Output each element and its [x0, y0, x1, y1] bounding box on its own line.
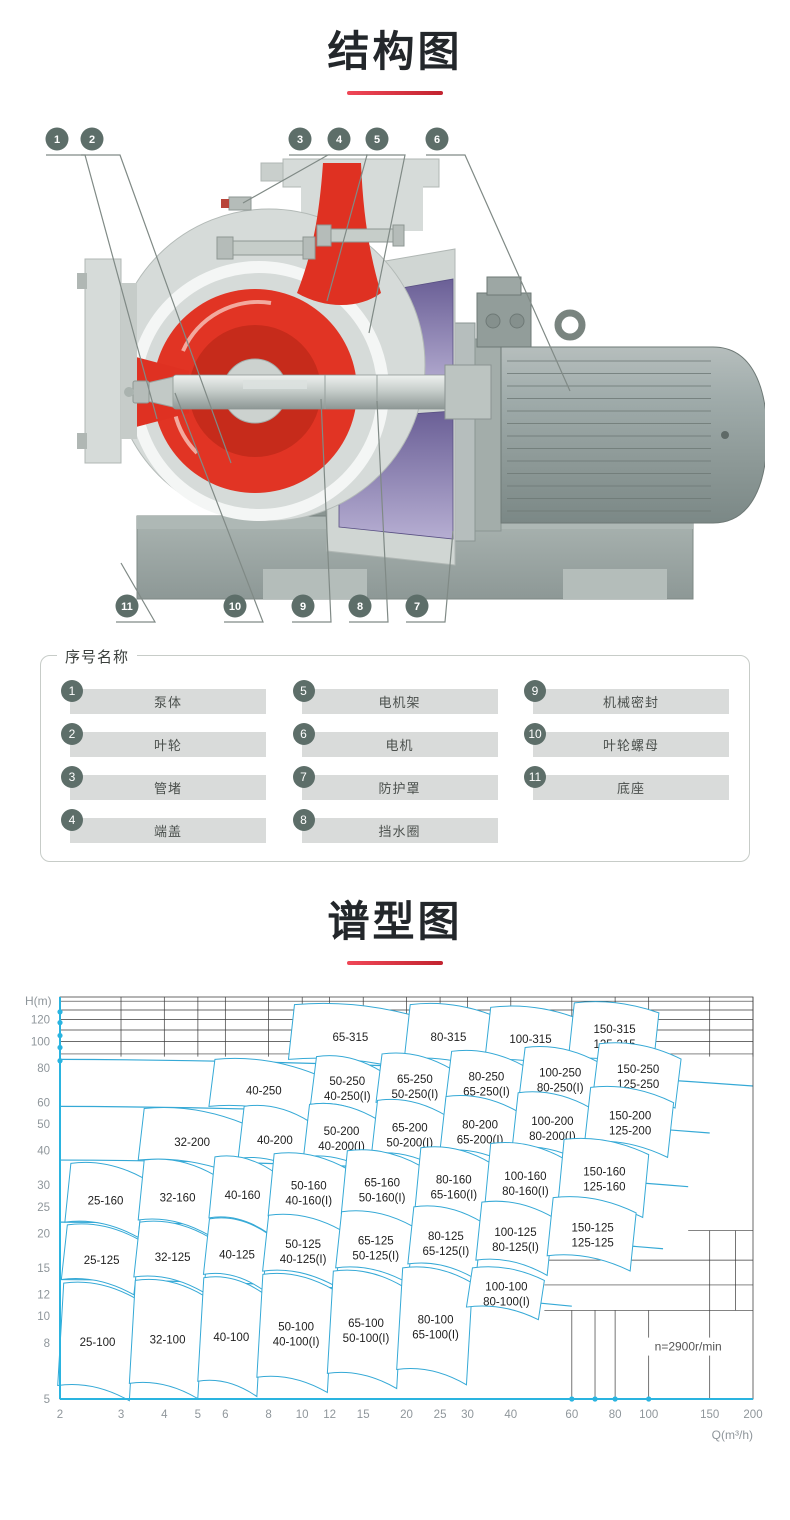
part-name: 端盖: [70, 818, 266, 843]
part-item: 2叶轮: [61, 723, 266, 759]
pump-selection-chart: 65-31580-315100-315150-315125-31540-2505…: [5, 981, 785, 1447]
part-name: 泵体: [70, 689, 266, 714]
region-label: 40-160(I): [285, 1195, 332, 1207]
region-label: 65-200: [392, 1123, 428, 1135]
part-item: 10叶轮螺母: [524, 723, 729, 759]
region-label: 50-100(I): [343, 1333, 390, 1345]
callout-number: 11: [121, 601, 133, 613]
parts-column: 5电机架6电机7防护罩8挡水圈: [293, 680, 498, 845]
part-name: 叶轮: [70, 732, 266, 757]
region-label: 32-160: [160, 1193, 196, 1205]
part-number-badge: 4: [61, 809, 83, 831]
region-label: 65-125: [358, 1235, 394, 1247]
region-label: 50-160(I): [359, 1193, 406, 1205]
structure-diagram-svg: 1234561110987: [25, 101, 765, 641]
region-label: 40-200: [257, 1135, 293, 1147]
svg-text:10: 10: [296, 1409, 309, 1421]
part-name: 电机: [302, 732, 498, 757]
callout-number: 5: [374, 134, 380, 146]
x-axis-title: Q(m³/h): [712, 1428, 753, 1442]
region-label: 25-160: [88, 1195, 124, 1207]
part-number-badge: 8: [293, 809, 315, 831]
part-number-badge: 5: [293, 680, 315, 702]
svg-text:20: 20: [400, 1409, 413, 1421]
svg-text:2: 2: [57, 1409, 63, 1421]
parts-column: 1泵体2叶轮3管堵4端盖: [61, 680, 266, 845]
part-number-badge: 2: [61, 723, 83, 745]
part-item: 11底座: [524, 766, 729, 802]
svg-text:12: 12: [37, 1289, 50, 1301]
region-label: 65-160(I): [430, 1190, 477, 1202]
part-name: 挡水圈: [302, 818, 498, 843]
part-name: 机械密封: [533, 689, 729, 714]
region-label: 125-125: [572, 1237, 614, 1249]
part-item: 3管堵: [61, 766, 266, 802]
part-item: 6电机: [293, 723, 498, 759]
region-label: 50-200: [324, 1126, 360, 1138]
part-item: 5电机架: [293, 680, 498, 716]
callout-number: 1: [54, 134, 60, 146]
svg-text:5: 5: [44, 1394, 50, 1406]
svg-text:40: 40: [504, 1409, 517, 1421]
region-label: 25-100: [80, 1337, 116, 1349]
region-label: 80-125: [428, 1231, 464, 1243]
part-number-badge: 3: [61, 766, 83, 788]
parts-column: 9机械密封10叶轮螺母11底座: [524, 680, 729, 845]
region-label: 80-250: [468, 1071, 504, 1083]
region-label: 150-125: [572, 1222, 614, 1234]
impeller-nut: [133, 381, 149, 403]
callout-number: 7: [414, 601, 420, 613]
parts-grid: 1泵体2叶轮3管堵4端盖5电机架6电机7防护罩8挡水圈9机械密封10叶轮螺母11…: [61, 680, 729, 845]
part-name: 防护罩: [302, 775, 498, 800]
part-number-badge: 1: [61, 680, 83, 702]
structure-title-underline: [347, 91, 443, 95]
region-label: 100-315: [509, 1034, 551, 1046]
region-label: 150-160: [583, 1166, 625, 1178]
callout-number: 9: [300, 601, 306, 613]
region-label: 40-125(I): [280, 1254, 327, 1266]
pump-model-regions: 65-31580-315100-315150-315125-31540-2505…: [58, 1002, 681, 1401]
svg-text:200: 200: [743, 1409, 762, 1421]
svg-text:6: 6: [222, 1409, 228, 1421]
region-label: 50-125(I): [352, 1250, 399, 1262]
part-number-badge: 9: [524, 680, 546, 702]
region-label: 40-100(I): [273, 1336, 320, 1348]
svg-text:25: 25: [434, 1409, 447, 1421]
svg-text:100: 100: [639, 1409, 658, 1421]
part-item: 7防护罩: [293, 766, 498, 802]
region-label: 50-250(I): [392, 1089, 439, 1101]
part-number-badge: 10: [524, 723, 546, 745]
svg-text:4: 4: [161, 1409, 168, 1421]
y-axis-title: H(m): [25, 994, 52, 1008]
region-label: 150-250: [617, 1064, 659, 1076]
region-label: 100-100: [485, 1282, 527, 1294]
region-label: 80-100(I): [483, 1297, 530, 1309]
region-label: 80-315: [431, 1032, 467, 1044]
region-label: 65-100: [348, 1318, 384, 1330]
svg-text:8: 8: [44, 1338, 50, 1350]
svg-text:30: 30: [461, 1409, 474, 1421]
region-label: 65-100(I): [412, 1329, 459, 1341]
svg-text:150: 150: [700, 1409, 719, 1421]
region-label: 50-125: [285, 1239, 321, 1251]
svg-text:100: 100: [31, 1036, 50, 1048]
parts-legend-header: 序号名称: [57, 646, 137, 667]
svg-text:50: 50: [37, 1119, 50, 1131]
svg-text:120: 120: [31, 1015, 50, 1027]
region-label: 65-315: [332, 1032, 368, 1044]
lifting-eye-icon: [558, 313, 582, 337]
chart-section-header: 谱型图: [0, 862, 790, 965]
svg-text:12: 12: [323, 1409, 336, 1421]
speed-note: n=2900r/min: [655, 1340, 722, 1354]
region-label: 32-100: [150, 1335, 186, 1347]
region-label: 80-160: [436, 1175, 472, 1187]
svg-text:80: 80: [37, 1063, 50, 1075]
callout-number: 6: [434, 134, 440, 146]
part-number-badge: 11: [524, 766, 546, 788]
region-label: 40-250(I): [324, 1091, 371, 1103]
svg-text:15: 15: [37, 1263, 50, 1275]
parts-legend: 序号名称 1泵体2叶轮3管堵4端盖5电机架6电机7防护罩8挡水圈9机械密封10叶…: [40, 655, 750, 862]
svg-text:20: 20: [37, 1228, 50, 1240]
region-label: 50-100: [278, 1321, 314, 1333]
region-label: 40-250: [246, 1086, 282, 1098]
region-label: 80-100: [418, 1314, 454, 1326]
suction-flange: [85, 259, 121, 463]
callout-number: 10: [229, 601, 241, 613]
part-number-badge: 7: [293, 766, 315, 788]
callout-number: 2: [89, 134, 95, 146]
structure-title: 结构图: [0, 18, 790, 79]
chart-title-underline: [347, 961, 443, 965]
region-label: 65-125(I): [423, 1246, 470, 1258]
svg-text:60: 60: [37, 1097, 50, 1109]
structure-section-header: 结构图: [0, 0, 790, 95]
part-name: 电机架: [302, 689, 498, 714]
region-label: 40-160: [225, 1190, 261, 1202]
part-item: 1泵体: [61, 680, 266, 716]
spectrum-chart-svg: 65-31580-315100-315150-315125-31540-2505…: [5, 981, 785, 1447]
page: 结构图 1234561110987 序号名称 1泵体2叶轮3管堵4端盖5电机架6…: [0, 0, 790, 1447]
part-item: 4端盖: [61, 809, 266, 845]
part-number-badge: 6: [293, 723, 315, 745]
region-label: 125-200: [609, 1125, 651, 1137]
region-label: 80-125(I): [492, 1242, 539, 1254]
svg-text:10: 10: [37, 1311, 50, 1323]
part-name: 底座: [533, 775, 729, 800]
region-label: 50-250: [329, 1076, 365, 1088]
region-label: 65-250: [397, 1074, 433, 1086]
region-label: 50-160: [291, 1180, 327, 1192]
callout-number: 3: [297, 134, 303, 146]
part-item: 8挡水圈: [293, 809, 498, 845]
pump-structure-diagram: 1234561110987: [25, 101, 765, 641]
region-label: 25-125: [84, 1255, 120, 1267]
svg-text:80: 80: [609, 1409, 622, 1421]
svg-text:25: 25: [37, 1202, 50, 1214]
part-name: 叶轮螺母: [533, 732, 729, 757]
svg-text:30: 30: [37, 1180, 50, 1192]
region-label: 100-200: [531, 1116, 573, 1128]
svg-text:3: 3: [118, 1409, 124, 1421]
pump-volute: [77, 159, 439, 521]
part-name: 管堵: [70, 775, 266, 800]
pipe-plug: [229, 197, 251, 210]
svg-text:40: 40: [37, 1146, 50, 1158]
region-label: 80-200: [462, 1119, 498, 1131]
region-label: 40-125: [219, 1249, 255, 1261]
part-item: 9机械密封: [524, 680, 729, 716]
svg-text:15: 15: [357, 1409, 370, 1421]
region-label: 40-100: [213, 1332, 249, 1344]
motor: [451, 277, 765, 541]
region-label: 150-315: [593, 1024, 635, 1036]
svg-text:8: 8: [265, 1409, 271, 1421]
region-label: 32-125: [155, 1252, 191, 1264]
region-label: 150-200: [609, 1110, 651, 1122]
svg-text:5: 5: [195, 1409, 201, 1421]
callout-number: 4: [336, 134, 343, 146]
svg-text:60: 60: [565, 1409, 578, 1421]
region-label: 100-125: [494, 1227, 536, 1239]
region-label: 32-200: [174, 1137, 210, 1149]
region-label: 100-250: [539, 1068, 581, 1080]
chart-title: 谱型图: [0, 888, 790, 949]
region-label: 100-160: [504, 1171, 546, 1183]
region-label: 65-160: [364, 1178, 400, 1190]
callout-number: 8: [357, 601, 363, 613]
region-label: 80-160(I): [502, 1186, 549, 1198]
region-label: 125-160: [583, 1181, 625, 1193]
